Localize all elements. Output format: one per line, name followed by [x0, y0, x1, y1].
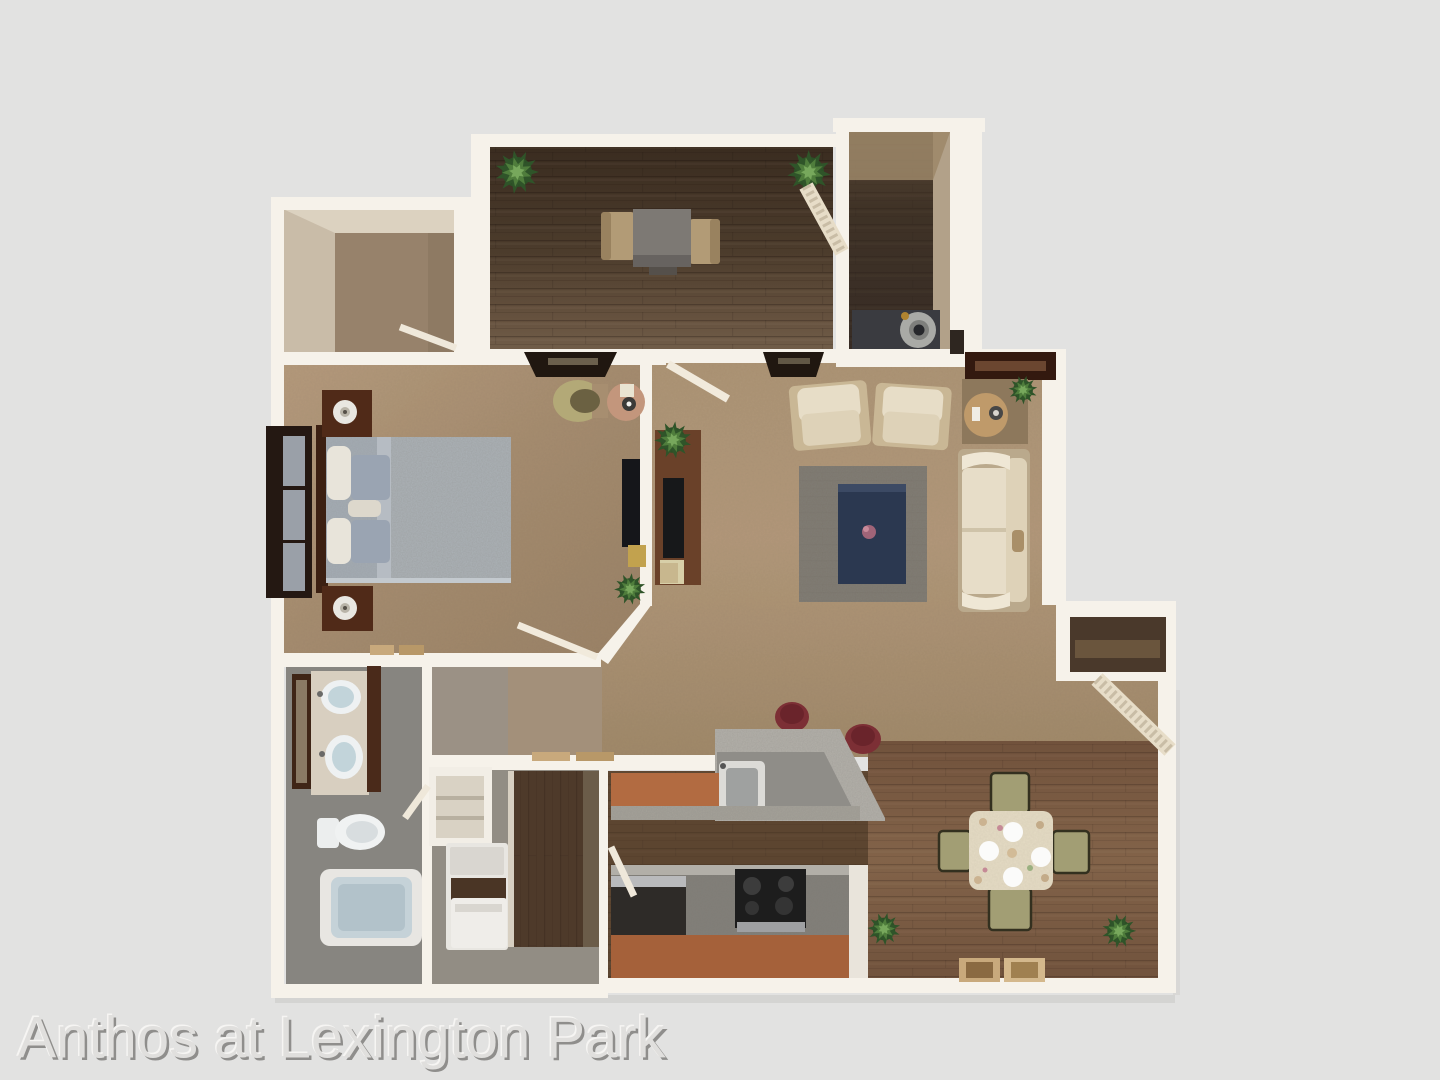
svg-text:Anthos at Lexington Park: Anthos at Lexington Park — [18, 1006, 667, 1071]
